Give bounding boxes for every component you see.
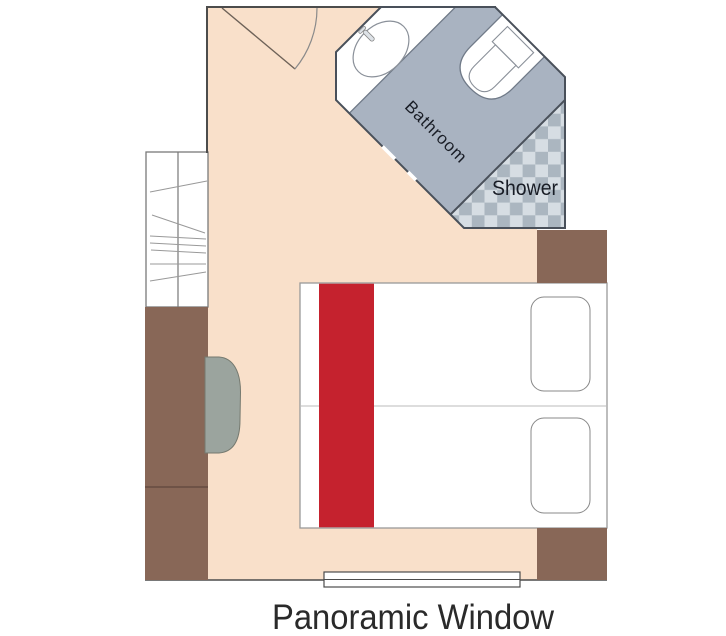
svg-text:Shower: Shower (492, 177, 558, 200)
svg-text:Panoramic Window: Panoramic Window (272, 598, 555, 636)
